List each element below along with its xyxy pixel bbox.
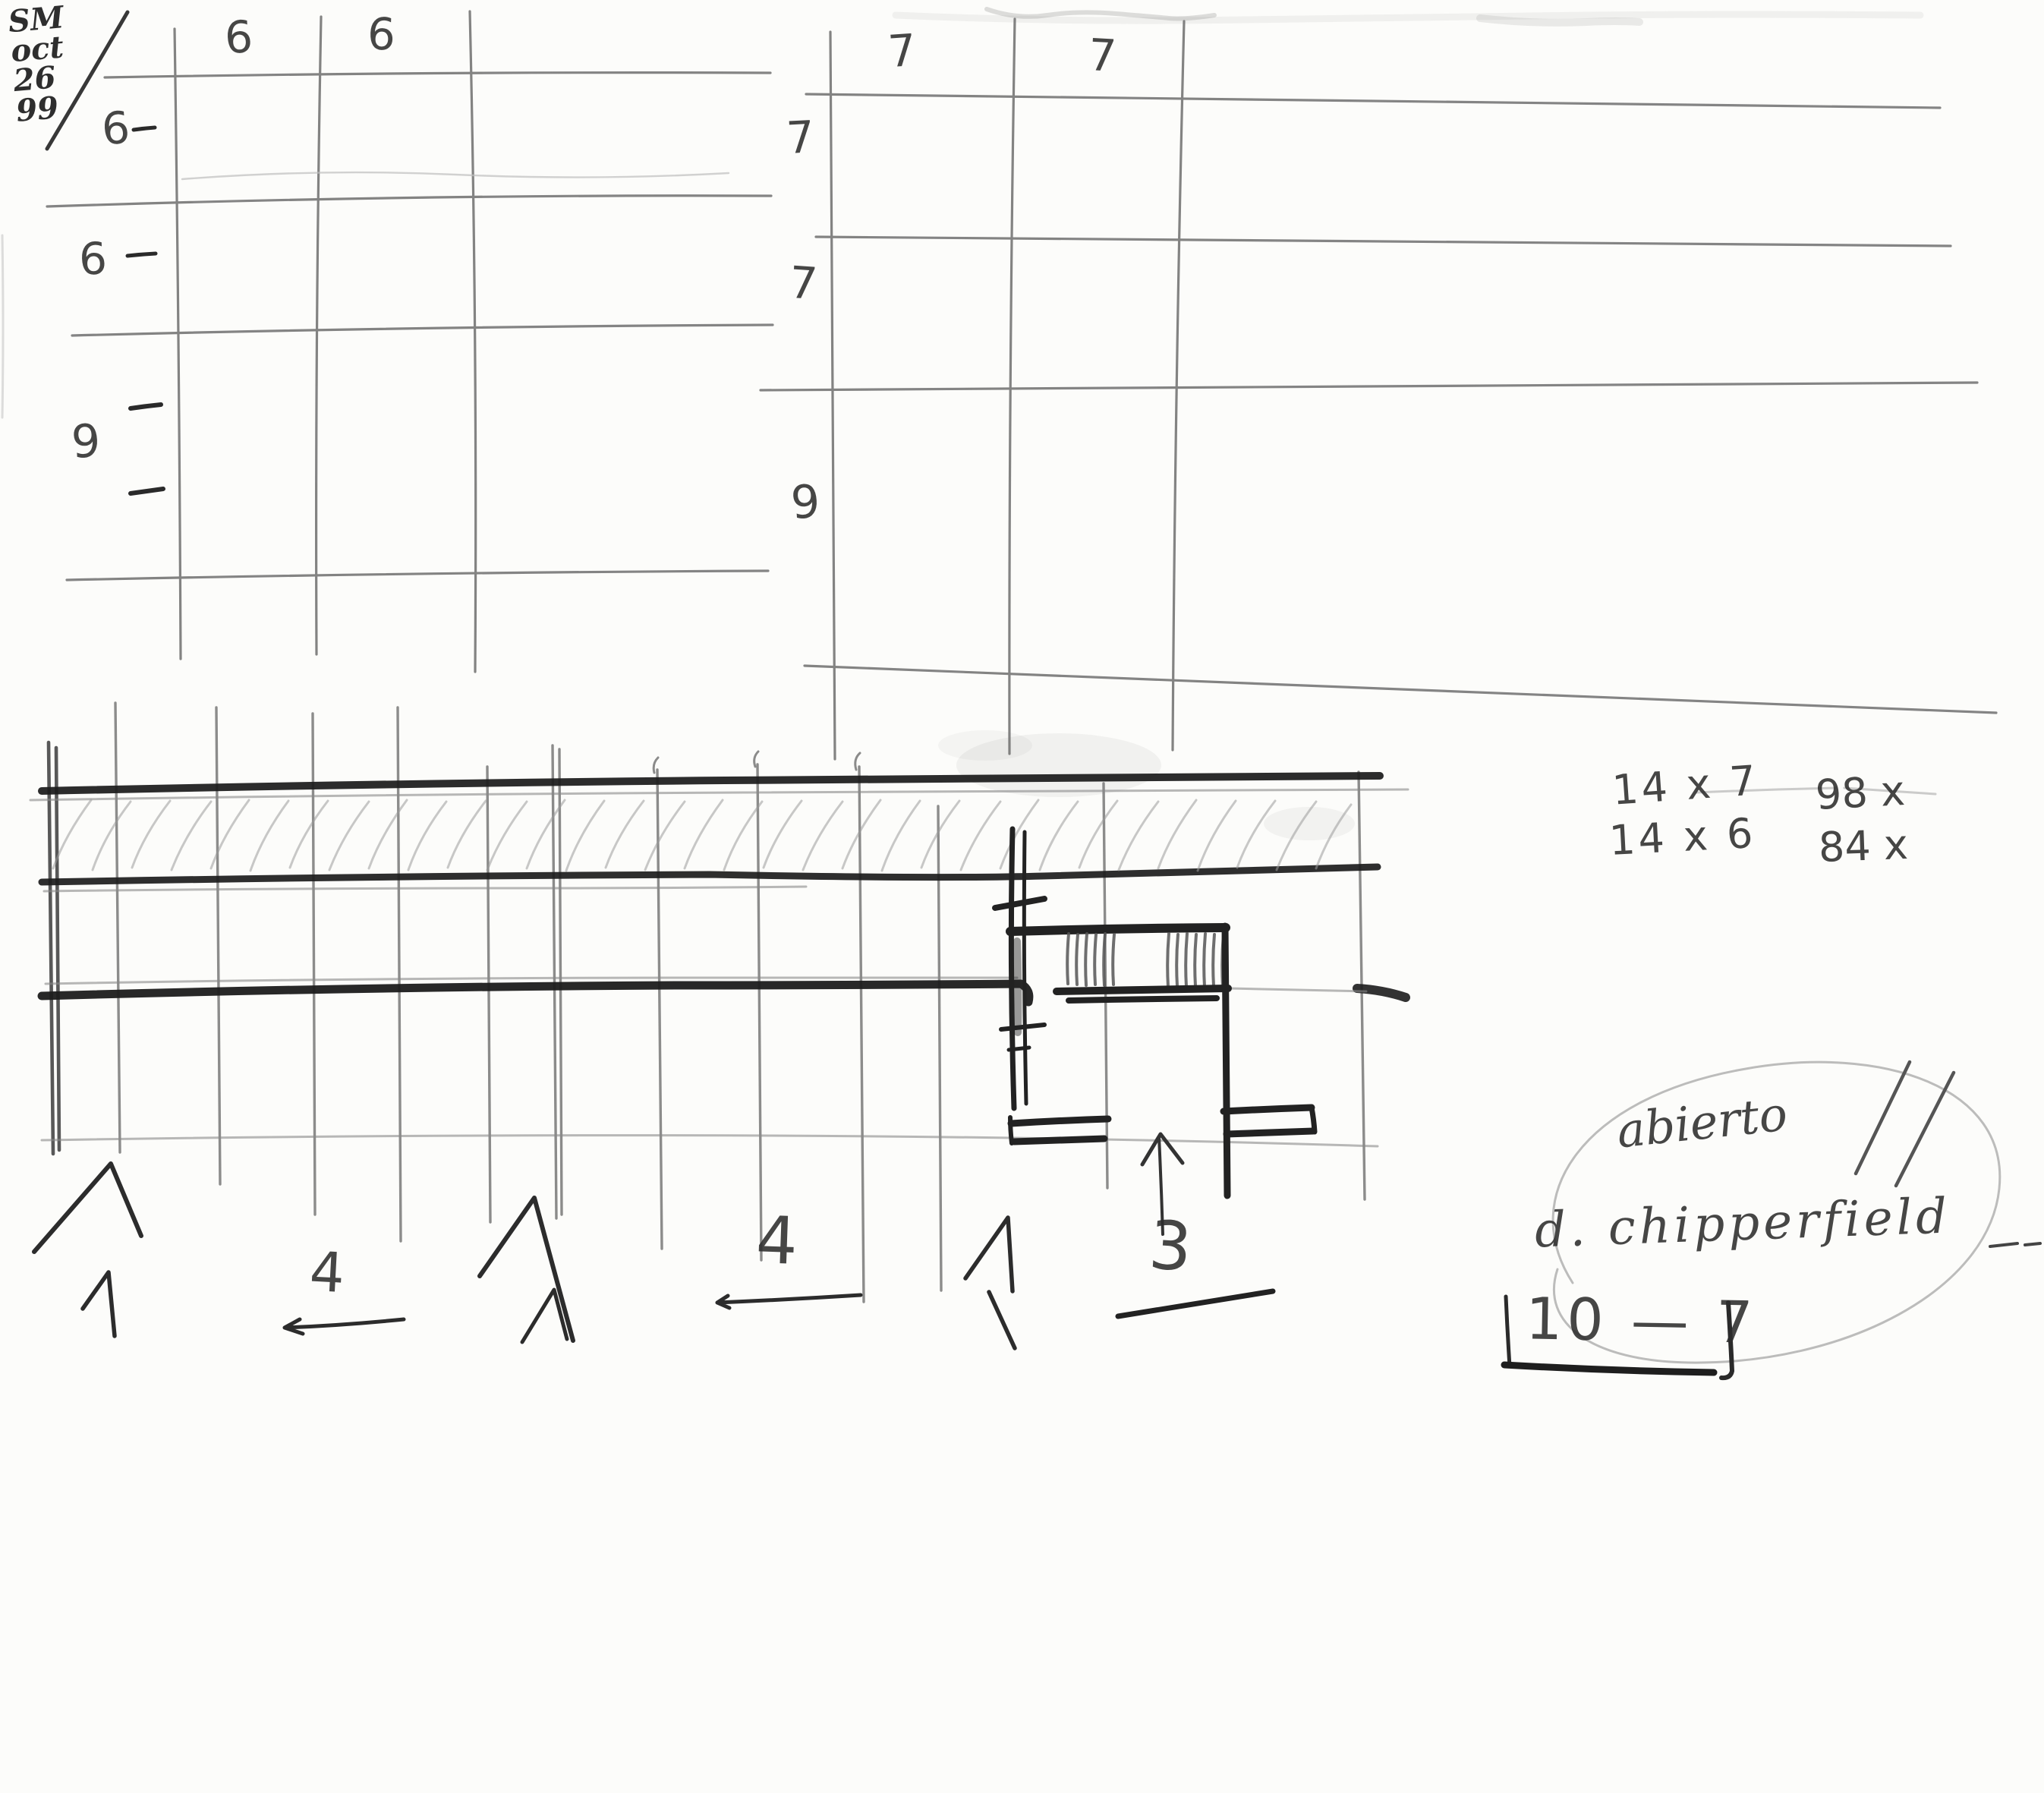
band-guide-lines	[30, 789, 1408, 1146]
left-grid-tick-dashes	[128, 128, 163, 493]
bay-number-four-left: 4	[308, 1244, 346, 1300]
underline-three	[1118, 1291, 1273, 1316]
right-grid-col-label-2: 7	[1088, 33, 1118, 78]
arrow-underline-mid	[717, 1295, 861, 1308]
left-grid-row-label-2: 6	[78, 236, 108, 281]
note-architect: d. chipperfield	[1534, 1192, 1951, 1255]
right-grid-row-label-1: 7	[786, 115, 816, 160]
calc-row1-result: 98 x	[1815, 770, 1907, 816]
left-storey-grid	[47, 11, 773, 672]
left-grid-row-label-3: 9	[70, 418, 101, 465]
trailing-dashes	[1990, 1243, 2040, 1246]
building-band	[30, 703, 1408, 1302]
right-storey-grid	[761, 19, 1996, 759]
bottom-annotation-marks	[34, 1164, 1273, 1348]
date-block: SM oct 26 99	[7, 2, 73, 126]
left-grid-col-label-1: 6	[224, 14, 254, 60]
pencil-sketch-svg	[0, 0, 2044, 1793]
calc-row1-expression: 14 x 7	[1611, 760, 1760, 811]
calc-row2-expression: 14 x 6	[1608, 813, 1757, 862]
right-grid-row-label-3: 9	[789, 479, 821, 527]
chevron-mark-2	[480, 1198, 573, 1341]
scanned-sketch-sheet: SM oct 26 99 6 6 6 6 9 7 7 7 7 9 14 x 7 …	[0, 0, 2044, 1793]
band-hatching	[53, 800, 1351, 871]
left-grid-col-label-2: 6	[367, 11, 396, 56]
left-grid-row-label-1: 6	[100, 106, 131, 151]
bay-number-four-right: 4	[755, 1208, 799, 1275]
scan-smudges	[2, 9, 1920, 840]
numeral-1-mark-right	[965, 1218, 1015, 1348]
numeral-1-mark-left	[83, 1272, 115, 1336]
chevron-mark-1	[34, 1164, 141, 1252]
emphasis-slashes	[1856, 1062, 1954, 1186]
band-left-edge	[49, 742, 59, 1154]
note-hours: 10 — 7	[1525, 1290, 1758, 1351]
right-grid-col-label-1: 7	[887, 28, 918, 74]
calc-row2-result: 84 x	[1818, 824, 1909, 868]
right-grid-row-label-2: 7	[788, 260, 819, 306]
date-year: 99	[15, 91, 73, 125]
arrow-underline-left	[285, 1319, 404, 1334]
bay-number-three: 3	[1147, 1212, 1194, 1281]
